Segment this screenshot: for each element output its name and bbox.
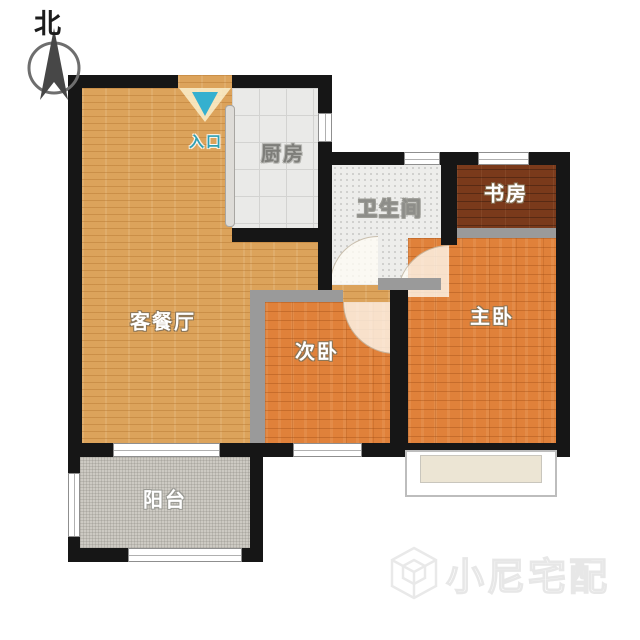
label-living-dining: 客餐厅 (130, 306, 196, 335)
wall-balcony-right (250, 443, 263, 562)
compass-arrow-icon (18, 0, 108, 115)
entrance-threshold (178, 75, 232, 89)
wall-kitchen-right-upper (318, 75, 332, 115)
wall-bathroom-top (318, 152, 406, 165)
study-master-partition (457, 228, 556, 238)
bathroom-bottom-partition (378, 278, 441, 290)
compass-north-label: 北 (34, 2, 61, 41)
wall-kitchen-bottom (232, 228, 332, 242)
secondary-left-partition (250, 290, 265, 443)
label-bathroom: 卫生间 (357, 193, 423, 222)
kitchen-window (318, 113, 332, 142)
wall-right (556, 152, 570, 457)
wall-left (68, 75, 82, 457)
watermark-text: 小尼宅配 (446, 546, 610, 601)
wall-top-kitchen (232, 75, 332, 88)
wall-between-bedrooms (390, 290, 408, 457)
watermark-logo-icon (388, 545, 440, 601)
wall-hallway-right (441, 152, 457, 245)
entrance-arrow-icon (192, 92, 218, 116)
floor-plan: 入口 客餐厅 厨房 卫生间 书房 主卧 次卧 阳台 北 小尼宅配 (0, 0, 640, 640)
balcony-left-window (68, 473, 80, 537)
master-bay-window-sill (420, 455, 542, 483)
label-study: 书房 (484, 178, 528, 207)
label-master-bedroom: 主卧 (470, 301, 514, 330)
watermark: 小尼宅配 (388, 545, 610, 601)
study-window (478, 152, 529, 165)
compass: 北 (18, 0, 108, 115)
label-kitchen: 厨房 (261, 138, 305, 167)
label-balcony: 阳台 (143, 484, 187, 513)
balcony-bottom-window (128, 548, 242, 562)
living-balcony-window (113, 443, 220, 457)
label-secondary-bedroom: 次卧 (295, 336, 339, 365)
kitchen-sliding-door (225, 105, 235, 227)
entrance-label: 入口 (189, 131, 223, 152)
bathroom-window (404, 152, 440, 165)
secondary-bedroom-window (293, 443, 362, 457)
wall-balcony-bottom-left (68, 548, 130, 562)
wall-balcony-left-upper (68, 443, 80, 475)
